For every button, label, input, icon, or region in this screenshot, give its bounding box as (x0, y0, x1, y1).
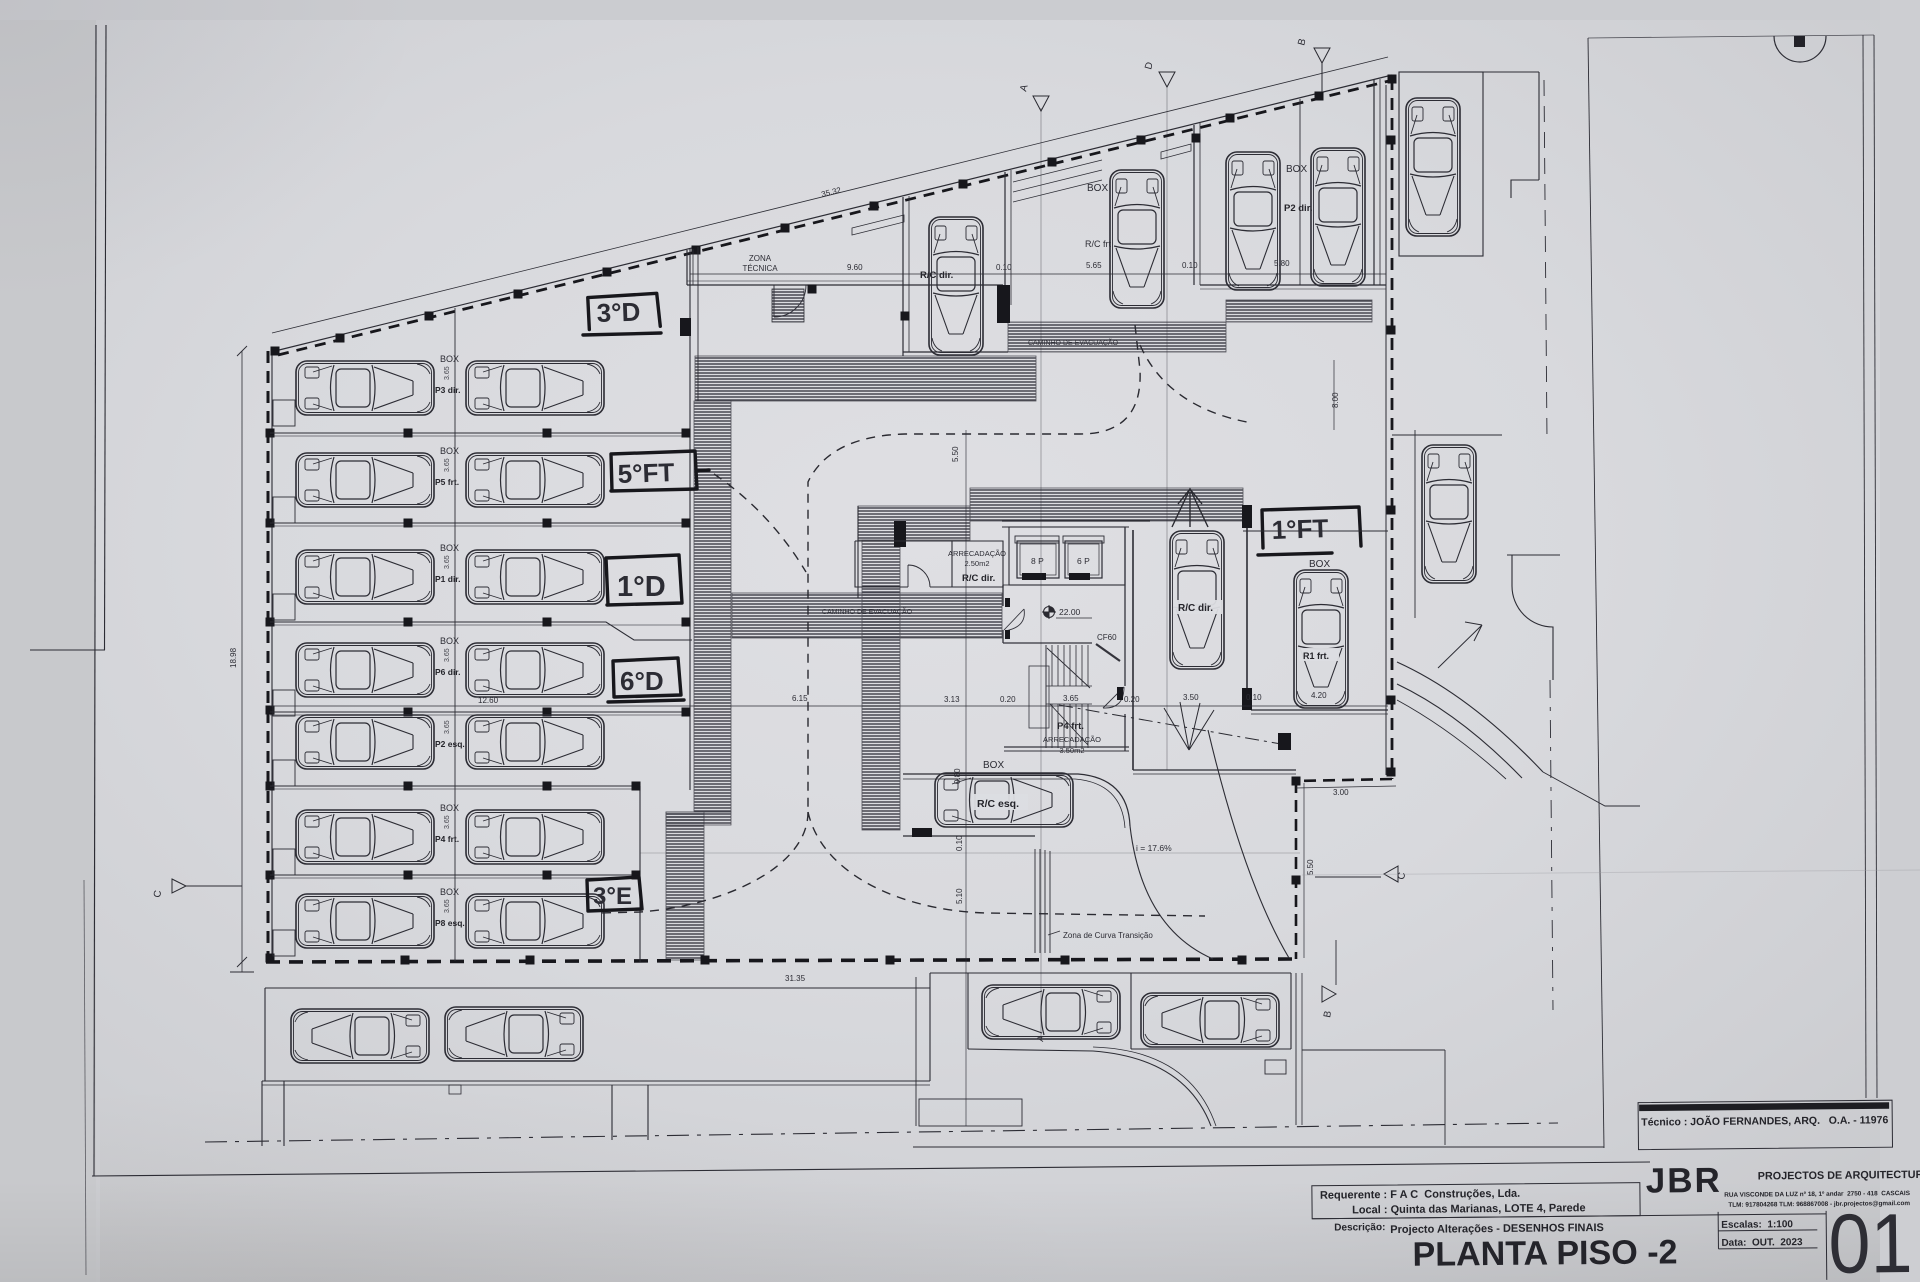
svg-text:CF60: CF60 (1097, 633, 1117, 642)
svg-text:P2 esq.: P2 esq. (435, 739, 465, 749)
svg-text:3.65: 3.65 (444, 815, 451, 829)
svg-text:0.10: 0.10 (1182, 261, 1198, 270)
svg-text:R/C dir.: R/C dir. (962, 573, 995, 584)
svg-text:5.10: 5.10 (955, 888, 964, 904)
svg-text:ARRECADAÇÃO: ARRECADAÇÃO (948, 549, 1006, 558)
svg-text:2.50m2: 2.50m2 (964, 559, 989, 568)
svg-text:Data: OUT. 2023: Data: OUT. 2023 (1721, 1237, 1803, 1249)
svg-text:P6 dir.: P6 dir. (435, 667, 461, 677)
svg-text:5.80: 5.80 (1274, 259, 1290, 268)
svg-text:R/C frt: R/C frt (1085, 239, 1111, 249)
svg-text:BOX: BOX (1286, 164, 1307, 175)
svg-text:BOX: BOX (440, 354, 459, 364)
svg-text:12.60: 12.60 (478, 696, 499, 705)
svg-text:3.50: 3.50 (1183, 693, 1199, 702)
svg-text:P4 frt.: P4 frt. (435, 834, 459, 844)
svg-text:3.00: 3.00 (1333, 788, 1349, 797)
svg-text:BOX: BOX (440, 803, 459, 813)
svg-text:0.20: 0.20 (1000, 695, 1016, 704)
svg-text:BOX: BOX (983, 760, 1004, 771)
svg-text:JBR: JBR (1646, 1161, 1722, 1201)
svg-text:P4 frt.: P4 frt. (1057, 721, 1084, 732)
svg-text:Descrição:: Descrição: (1334, 1222, 1385, 1233)
svg-text:BOX: BOX (1309, 559, 1330, 570)
svg-text:5.50: 5.50 (1306, 859, 1315, 875)
svg-text:3.65: 3.65 (444, 458, 451, 472)
svg-text:0.10: 0.10 (996, 263, 1012, 272)
svg-text:ARRECADAÇÃO: ARRECADAÇÃO (1043, 735, 1101, 744)
svg-text:ZONA: ZONA (749, 254, 772, 263)
svg-text:Local : Quinta das Marianas, L: Local : Quinta das Marianas, LOTE 4, Par… (1352, 1202, 1586, 1216)
svg-text:PLANTA PISO -2: PLANTA PISO -2 (1412, 1233, 1677, 1274)
svg-text:Zona de Curva Transição: Zona de Curva Transição (1063, 931, 1153, 940)
svg-text:P3 dir.: P3 dir. (435, 385, 461, 395)
svg-text:3.65: 3.65 (444, 720, 451, 734)
svg-text:0.10: 0.10 (1246, 693, 1262, 702)
svg-text:3.65: 3.65 (444, 899, 451, 913)
svg-text:CAMINHO DE EVACUAÇÃO: CAMINHO DE EVACUAÇÃO (1028, 338, 1119, 347)
svg-text:3.65: 3.65 (444, 366, 451, 380)
svg-text:31.35: 31.35 (785, 974, 806, 983)
svg-text:1°D: 1°D (617, 571, 666, 603)
svg-text:i = 17.6%: i = 17.6% (1136, 843, 1172, 853)
svg-text:R/C dir.: R/C dir. (1178, 603, 1213, 614)
svg-text:TÉCNICA: TÉCNICA (742, 264, 778, 273)
svg-text:BOX: BOX (440, 636, 459, 646)
svg-text:BOX: BOX (440, 543, 459, 553)
svg-text:BOX: BOX (440, 887, 459, 897)
svg-text:6 P: 6 P (1077, 556, 1090, 566)
svg-text:0.10: 0.10 (955, 835, 964, 851)
svg-text:P8 esq.: P8 esq. (435, 918, 465, 928)
svg-text:8 P: 8 P (1031, 556, 1044, 566)
svg-text:4.20: 4.20 (1311, 691, 1327, 700)
svg-text:P5 frt.: P5 frt. (435, 477, 459, 487)
svg-text:0.20: 0.20 (1124, 695, 1140, 704)
svg-text:6.15: 6.15 (792, 694, 808, 703)
svg-text:P1 dir.: P1 dir. (435, 574, 461, 584)
svg-text:3.50m2: 3.50m2 (1059, 746, 1084, 755)
svg-text:01: 01 (1828, 1196, 1913, 1282)
svg-text:5.50: 5.50 (951, 446, 960, 462)
svg-text:5°FT: 5°FT (617, 457, 675, 489)
svg-text:P2 dir.: P2 dir. (1284, 203, 1313, 214)
svg-text:BOX: BOX (440, 446, 459, 456)
svg-text:PROJECTOS DE ARQUITECTURA: PROJECTOS DE ARQUITECTURA (1758, 1169, 1920, 1183)
svg-text:3°D: 3°D (596, 296, 641, 328)
svg-text:3.65: 3.65 (1063, 694, 1079, 703)
svg-text:5.65: 5.65 (1086, 261, 1102, 270)
svg-text:6°D: 6°D (620, 666, 664, 696)
svg-text:0.80: 0.80 (953, 768, 962, 784)
svg-text:Técnico : JOÃO FERNANDES, ARQ.: Técnico : JOÃO FERNANDES, ARQ. O.A. - 11… (1641, 1113, 1888, 1128)
svg-text:Escalas: 1:100: Escalas: 1:100 (1721, 1219, 1793, 1231)
svg-text:R/C esq.: R/C esq. (977, 798, 1019, 810)
svg-text:8.00: 8.00 (1331, 392, 1340, 408)
svg-text:18.98: 18.98 (229, 647, 238, 668)
svg-text:9.60: 9.60 (847, 263, 863, 272)
svg-text:CAMINHO DE EVACUAÇÃO: CAMINHO DE EVACUAÇÃO (822, 607, 913, 616)
svg-text:3°E: 3°E (593, 883, 632, 910)
svg-text:3.65: 3.65 (444, 555, 451, 569)
svg-text:BOX: BOX (1087, 183, 1108, 194)
svg-text:3.13: 3.13 (944, 695, 960, 704)
svg-text:3.65: 3.65 (444, 648, 451, 662)
svg-text:Requerente : F A C Construçõe: Requerente : F A C Construções, Lda. (1320, 1188, 1520, 1202)
svg-text:22.00: 22.00 (1059, 607, 1081, 617)
svg-text:R1 frt.: R1 frt. (1303, 651, 1329, 661)
svg-text:1°FT: 1°FT (1271, 513, 1329, 545)
